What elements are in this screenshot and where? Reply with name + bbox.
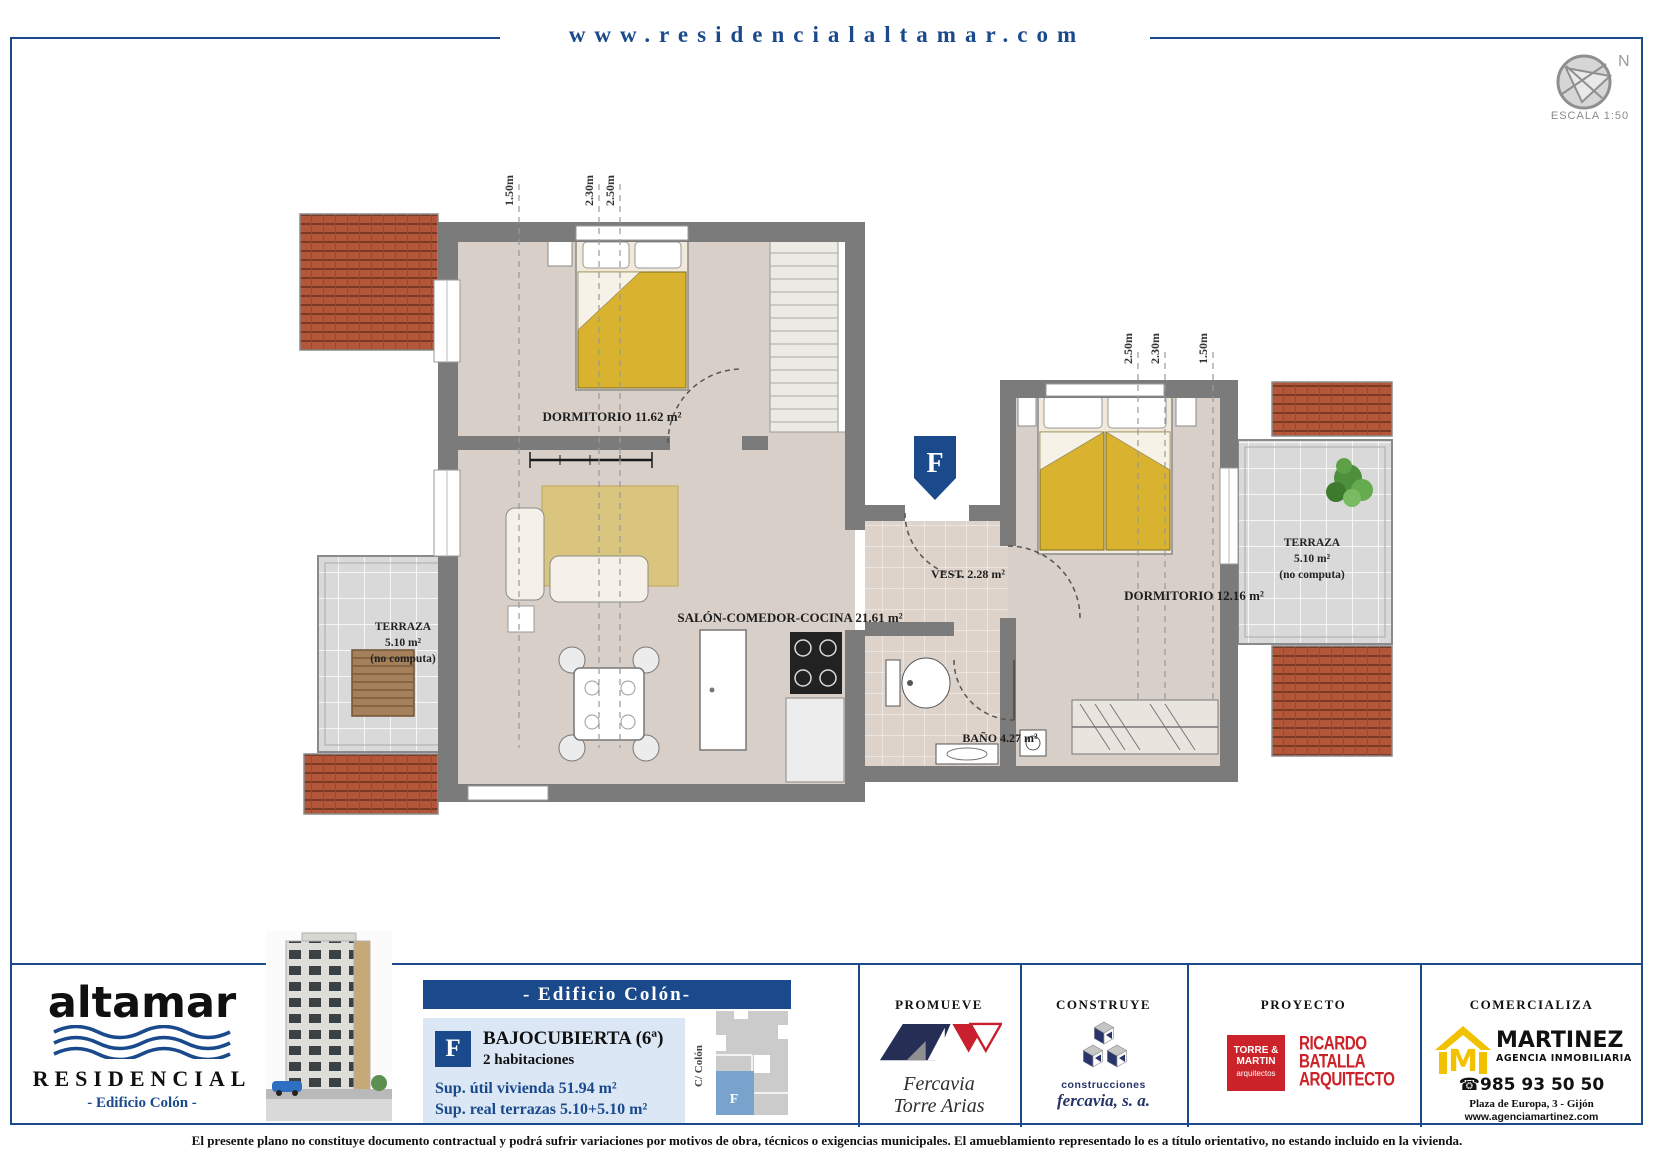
comercializa-web: www.agenciamartinez.com: [1420, 1111, 1643, 1123]
torre-martin-logo: TORRE & MARTIN arquitectos: [1227, 1035, 1285, 1091]
label-terraza-left-3: (no computa): [370, 653, 436, 665]
label-terraza-right-2: 5.10 m²: [1294, 553, 1331, 565]
plan-sheet: www.residencialaltamar.com N ESCALA 1:50: [0, 0, 1654, 1170]
closet-2: [1072, 700, 1218, 754]
unit-area-util: Sup. útil vivienda 51.94 m²: [435, 1080, 617, 1098]
dim-top-3: 2.50m: [603, 175, 617, 206]
compass-icon: N: [1548, 48, 1640, 112]
construye-name-1: construcciones: [1020, 1079, 1187, 1091]
brand-type: RESIDENCIAL: [28, 1066, 256, 1092]
cubes-logo-icon: [1072, 1019, 1138, 1077]
comercializa-title: COMERCIALIZA: [1420, 997, 1643, 1013]
tree-icon: [371, 1075, 387, 1091]
ricardo-batalla-logo: RICARDO BATALLA ARQUITECTO: [1299, 1035, 1394, 1089]
bed-2: [1018, 390, 1196, 554]
comercializa-section: COMERCIALIZA M MARTINEZ AGENCIA INMOBILI…: [1420, 965, 1643, 1127]
promueve-title: PROMUEVE: [858, 997, 1020, 1013]
ricardo-batalla-line-2: BATALLA: [1299, 1053, 1394, 1071]
label-terraza-left-1: TERRAZA: [375, 621, 432, 633]
unit-location-map: C/ Colón F: [692, 1007, 802, 1123]
unit-rooms: 2 habitaciones: [483, 1052, 574, 1069]
building-photo: [266, 931, 392, 1123]
phone-icon: ☎: [1459, 1075, 1480, 1095]
unit-marker-badge: F: [914, 436, 956, 500]
unit-area-terrazas: Sup. real terrazas 5.10+5.10 m²: [435, 1101, 647, 1119]
label-bano: BAÑO 4.27 m²: [962, 731, 1038, 745]
footer: altamar RESIDENCIAL - Edificio Colón -: [10, 963, 1643, 1127]
website-url: www.residencialaltamar.com: [0, 22, 1654, 48]
label-terraza-left-2: 5.10 m²: [385, 637, 422, 649]
promueve-name-1: Fercavia: [858, 1073, 1020, 1096]
ricardo-batalla-line-3: ARQUITECTO: [1299, 1071, 1394, 1089]
promueve-name-2: Torre Arias: [858, 1095, 1020, 1118]
label-dormitorio-2: DORMITORIO 12.16 m²: [1124, 588, 1264, 603]
brand-name: altamar: [28, 981, 256, 1025]
comercializa-name: MARTINEZ: [1496, 1029, 1632, 1053]
promueve-section: PROMUEVE Fercavia Torre Arias: [858, 965, 1020, 1127]
label-terraza-right-1: TERRAZA: [1284, 537, 1341, 549]
unit-marker-letter: F: [926, 448, 943, 479]
proyecto-title: PROYECTO: [1187, 997, 1420, 1013]
ricardo-batalla-line-1: RICARDO: [1299, 1035, 1394, 1053]
brand-logo: altamar RESIDENCIAL - Edificio Colón -: [28, 981, 256, 1112]
closet-shelves: [770, 240, 846, 432]
frame-right: [1641, 37, 1643, 1125]
torre-martin-line-3: arquitectos: [1227, 1069, 1285, 1078]
sink-icon: [936, 744, 998, 764]
label-vestibulo: VEST. 2.28 m²: [931, 567, 1005, 581]
comercializa-phone: ☎985 93 50 50: [1420, 1075, 1643, 1095]
dim-right-1: 2.50m: [1121, 333, 1135, 364]
label-dormitorio-1: DORMITORIO 11.62 m²: [542, 409, 681, 424]
phone-number: 985 93 50 50: [1480, 1075, 1604, 1095]
scale-label: ESCALA 1:50: [1535, 110, 1645, 122]
dim-top-1: 1.50m: [502, 175, 516, 206]
floor-plan: 1.50m 2.30m 2.50m 2.50m 2.30m 1.50m DORM…: [280, 140, 1410, 900]
waves-icon: [50, 1025, 234, 1059]
dim-right-3: 1.50m: [1196, 333, 1210, 364]
torre-martin-line-2: MARTIN: [1227, 1056, 1285, 1067]
unit-info-box: F BAJOCUBIERTA (6ª) 2 habitaciones Sup. …: [423, 1018, 685, 1123]
frame-left: [10, 37, 12, 1125]
label-salon: SALÓN-COMEDOR-COCINA 21.61 m²: [677, 610, 902, 625]
proyecto-section: PROYECTO TORRE & MARTIN arquitectos RICA…: [1187, 965, 1420, 1127]
unit-letter-badge: F: [435, 1031, 471, 1067]
edificio-title-bar: - Edificio Colón-: [423, 980, 791, 1009]
comercializa-address: Plaza de Europa, 3 - Gijón: [1420, 1098, 1643, 1110]
street-label: C/ Colón: [693, 1045, 705, 1087]
disclaimer-text: El presente plano no constituye document…: [0, 1133, 1654, 1149]
torre-martin-line-1: TORRE &: [1227, 1045, 1285, 1056]
comercializa-subtitle: AGENCIA INMOBILIARIA: [1496, 1053, 1632, 1064]
label-terraza-right-3: (no computa): [1279, 569, 1345, 581]
map-unit-letter: F: [730, 1092, 739, 1107]
martinez-logo-letter: M: [1448, 1044, 1478, 1075]
dim-right-2: 2.30m: [1148, 333, 1162, 364]
construye-section: CONSTRUYE construcciones ferca: [1020, 965, 1187, 1127]
toilet-icon: [886, 658, 950, 708]
unit-floor: BAJOCUBIERTA (6ª): [483, 1028, 663, 1050]
dim-top-2: 2.30m: [582, 175, 596, 206]
construye-title: CONSTRUYE: [1020, 997, 1187, 1013]
car-icon: [272, 1081, 302, 1092]
martinez-house-icon: M: [1434, 1025, 1492, 1075]
construye-name-2: fercavia, s. a.: [1020, 1091, 1187, 1111]
brand-building: - Edificio Colón -: [28, 1095, 256, 1112]
north-label: N: [1618, 53, 1630, 70]
fercavia-logo-icon: [878, 1021, 1002, 1067]
